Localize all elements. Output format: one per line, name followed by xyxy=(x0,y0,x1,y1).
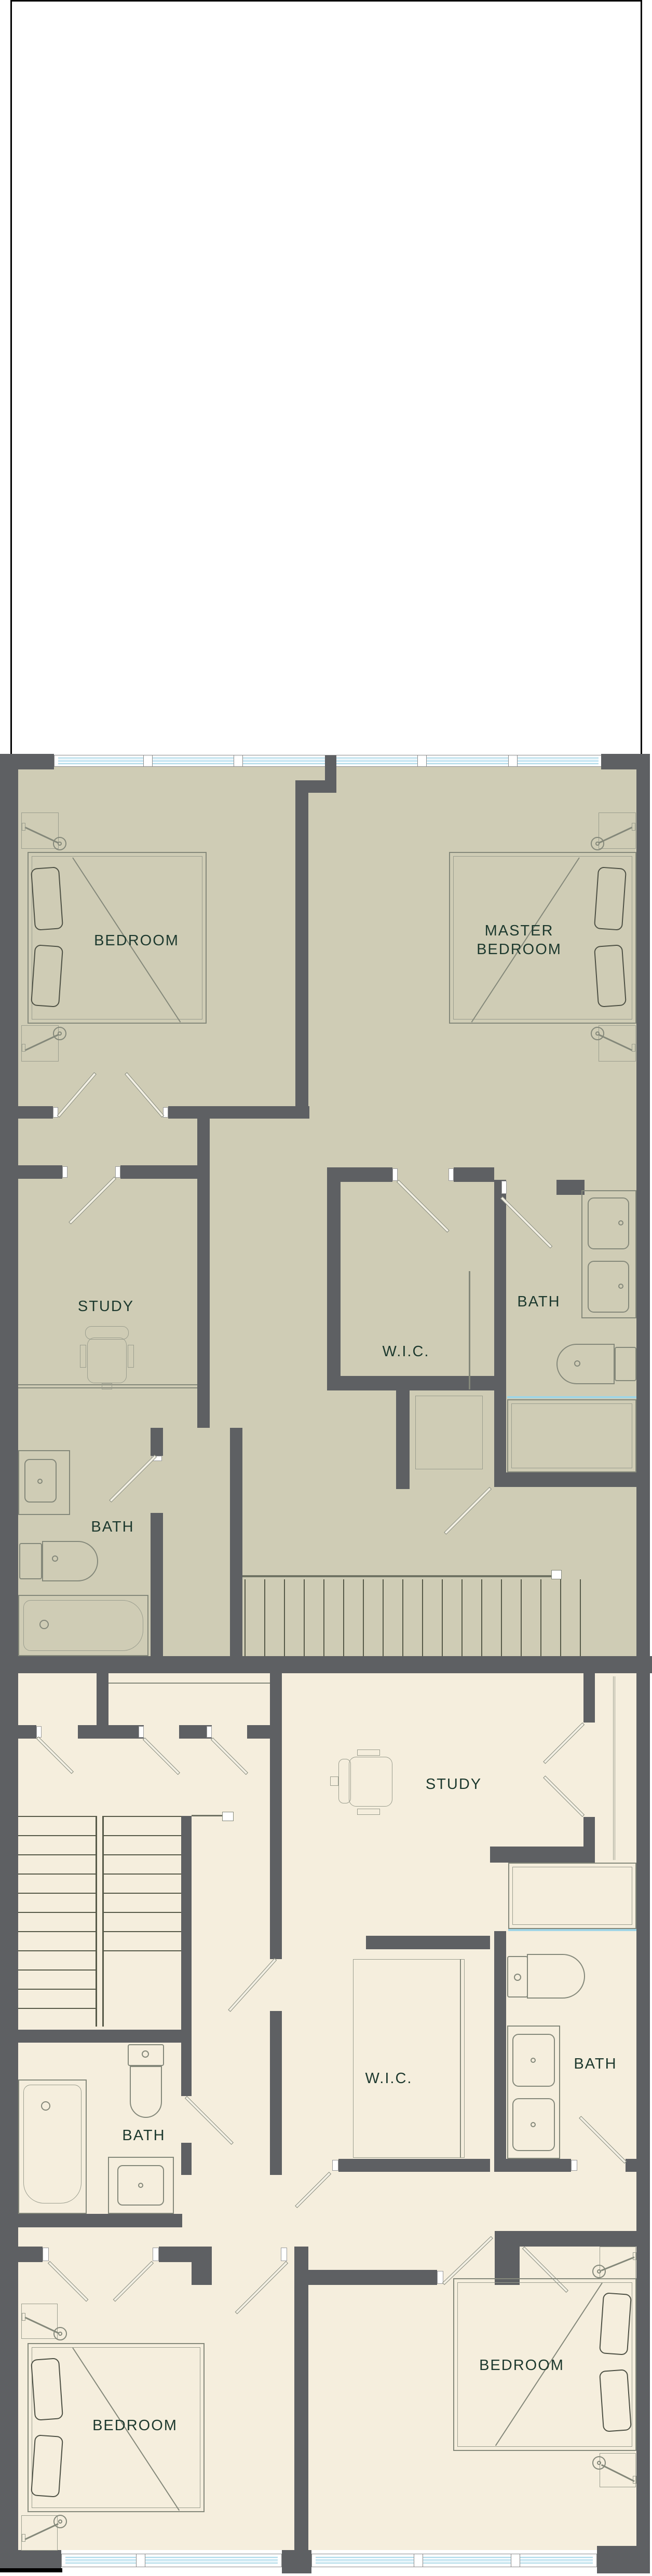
door-jamb xyxy=(62,1166,67,1178)
office-chair-base xyxy=(330,1776,338,1786)
wall xyxy=(18,1725,36,1739)
lamp-base xyxy=(632,1044,635,1052)
wall-lamp-icon xyxy=(58,2332,62,2336)
window-mullion xyxy=(417,755,427,767)
wall xyxy=(494,1180,506,1487)
wall xyxy=(520,2231,636,2247)
pillow xyxy=(31,866,63,931)
wall xyxy=(294,2247,308,2550)
drain-icon xyxy=(39,1620,49,1629)
wall xyxy=(270,1673,282,1959)
stair-treads xyxy=(104,1816,181,1952)
wall-lamp-icon xyxy=(58,2519,62,2524)
office-chair-arm xyxy=(357,1750,380,1756)
stair-stringer xyxy=(96,1816,104,2027)
toilet-flush-icon xyxy=(142,2050,149,2058)
door-jamb xyxy=(36,1726,42,1738)
lamp-base xyxy=(633,2252,636,2260)
window-mullion xyxy=(234,755,243,767)
pillow xyxy=(594,944,627,1008)
door-jamb xyxy=(571,2160,577,2171)
door-jamb xyxy=(281,2248,287,2261)
room-label-bedroom-upper: BEDROOM xyxy=(94,931,179,950)
window-mullion xyxy=(508,755,518,767)
wall xyxy=(0,754,54,769)
sheet-border-bottom xyxy=(0,2568,62,2572)
door-jamb xyxy=(207,1726,212,1738)
closet-shelf xyxy=(415,1396,483,1469)
wall xyxy=(583,1673,595,1723)
wall xyxy=(636,754,650,1673)
wall xyxy=(18,2030,182,2043)
wall xyxy=(270,2011,282,2175)
faucet-icon xyxy=(531,2058,536,2063)
sheet-border-right xyxy=(641,0,642,768)
closet-shelf xyxy=(353,1959,465,2158)
nightstand xyxy=(600,2453,636,2487)
wall xyxy=(192,2247,212,2285)
toilet-flush-icon xyxy=(52,1555,58,1562)
stair-treads xyxy=(18,1816,96,2027)
room-label-master-bedroom: MASTER BEDROOM xyxy=(477,921,562,959)
shower-tray-inner xyxy=(511,1403,632,1468)
wall xyxy=(0,2550,61,2568)
door-jamb xyxy=(153,2248,159,2261)
door-jamb xyxy=(392,1168,398,1181)
pillow xyxy=(31,2358,63,2421)
drain-icon xyxy=(41,2101,50,2111)
wall xyxy=(18,2214,182,2227)
room-label-wic-lower: W.I.C. xyxy=(365,2069,413,2088)
toilet-flush-icon xyxy=(514,1974,521,1981)
room-label-master-line2: BEDROOM xyxy=(477,940,562,959)
pillow xyxy=(31,944,63,1008)
lamp-base xyxy=(632,823,635,831)
door-jamb xyxy=(139,1726,144,1738)
wall xyxy=(494,1931,506,2172)
office-chair-arm xyxy=(128,1345,134,1368)
wall xyxy=(506,1472,636,1487)
wall xyxy=(597,2546,650,2573)
wall xyxy=(494,2159,571,2172)
faucet-icon xyxy=(138,2183,143,2188)
closet-partition-line xyxy=(460,1959,461,2158)
room-label-study-lower: STUDY xyxy=(426,1775,482,1794)
door-jamb xyxy=(449,1168,454,1181)
room-label-study-upper: STUDY xyxy=(78,1297,134,1316)
lamp-base xyxy=(22,2313,25,2321)
office-chair-arm xyxy=(80,1345,86,1368)
stair-rail xyxy=(242,1575,561,1577)
wall xyxy=(295,793,308,1106)
window-glass xyxy=(65,2557,278,2564)
wall xyxy=(327,1182,341,1376)
wall xyxy=(0,1656,652,1673)
room-label-bath-lower-right: BATH xyxy=(574,2055,617,2073)
office-chair-base xyxy=(102,1383,112,1389)
toilet-tank xyxy=(19,1543,42,1579)
room-label-wic-upper: W.I.C. xyxy=(383,1342,430,1361)
window-mullion xyxy=(143,755,153,767)
toilet-tank xyxy=(615,1347,636,1381)
sheet-border-left xyxy=(10,0,12,768)
office-chair-seat xyxy=(87,1338,127,1383)
wall xyxy=(247,1725,282,1739)
toilet-bowl xyxy=(527,1954,585,1999)
door-jamb xyxy=(332,2160,338,2171)
lamp-base xyxy=(633,2476,636,2484)
toilet-bowl xyxy=(130,2066,162,2118)
wall xyxy=(583,1817,595,1863)
wall xyxy=(18,1165,62,1179)
shower-tray-inner xyxy=(512,1867,632,1925)
wall xyxy=(181,1816,192,2096)
window-mullion xyxy=(136,2554,145,2567)
wall xyxy=(636,1673,650,2573)
faucet-icon xyxy=(531,2122,536,2127)
room-label-master-line1: MASTER xyxy=(477,921,562,940)
room-label-bedroom-lower-right: BEDROOM xyxy=(479,2356,564,2375)
wall xyxy=(366,1936,490,1949)
wall xyxy=(0,754,18,1673)
wall xyxy=(18,1106,53,1119)
lamp-base xyxy=(22,1044,25,1052)
wall xyxy=(626,2159,636,2172)
wall xyxy=(295,780,336,793)
wall xyxy=(230,1428,242,1656)
toilet-flush-icon xyxy=(574,1360,580,1367)
wall xyxy=(282,2550,311,2573)
wall xyxy=(120,1165,210,1179)
lamp-base xyxy=(22,823,25,831)
nightstand xyxy=(21,2304,58,2339)
wall xyxy=(0,1673,18,2568)
wall xyxy=(168,1106,309,1119)
stair-rail xyxy=(192,1815,222,1816)
room-label-bath-lower-left: BATH xyxy=(122,2126,165,2145)
wall xyxy=(308,2270,437,2285)
door-jamb xyxy=(115,1166,120,1178)
wall xyxy=(490,1847,585,1863)
closet-partition-line xyxy=(469,1271,470,1389)
floor-plan-sheet: BEDROOM MASTER BEDROOM STUDY W.I.C. BATH xyxy=(0,0,652,2576)
wall xyxy=(327,1167,392,1182)
window-mullion xyxy=(414,2554,423,2567)
pillow xyxy=(594,866,627,931)
room-label-bath-upper-right: BATH xyxy=(517,1292,560,1311)
shower-glass xyxy=(508,1929,636,1931)
toilet-bowl xyxy=(42,1541,98,1581)
pillow xyxy=(599,2292,632,2355)
office-chair-seat xyxy=(349,1757,392,1807)
wall-lamp-icon xyxy=(597,2461,601,2465)
wall xyxy=(495,2231,520,2285)
office-chair-arm xyxy=(357,1809,380,1815)
bathtub-inner xyxy=(23,2085,81,2203)
wall xyxy=(18,2247,43,2262)
wall xyxy=(396,1390,410,1489)
wall xyxy=(78,1725,108,1739)
pillow xyxy=(31,2434,63,2498)
room-label-bath-upper-left: BATH xyxy=(91,1518,134,1536)
shower-glass xyxy=(507,1396,636,1398)
wall xyxy=(151,1428,163,1456)
closet-partition-line xyxy=(613,1676,615,1860)
stair-newel-post xyxy=(551,1570,562,1579)
window-glass xyxy=(316,2557,593,2564)
wall xyxy=(159,2247,192,2262)
wall xyxy=(181,2143,192,2175)
toilet-bowl xyxy=(556,1344,615,1384)
faucet-icon xyxy=(618,1284,623,1289)
stair-newel-post xyxy=(222,1812,234,1821)
room-label-bedroom-lower-left: BEDROOM xyxy=(92,2416,178,2435)
sheet-border-top xyxy=(10,0,642,2)
faucet-icon xyxy=(618,1220,623,1225)
window-mullion xyxy=(511,2554,520,2567)
wall xyxy=(197,1119,210,1428)
lamp-base xyxy=(22,2534,25,2542)
door-jamb xyxy=(163,1107,168,1118)
closet-rod-line xyxy=(108,1683,270,1684)
wall xyxy=(454,1167,494,1182)
door-jamb xyxy=(501,1181,507,1194)
wall xyxy=(556,1180,585,1195)
wall xyxy=(338,2159,490,2172)
door-jamb xyxy=(43,2248,49,2261)
wall xyxy=(151,1513,163,1656)
faucet-icon xyxy=(37,1479,43,1484)
stair-treads xyxy=(244,1579,595,1656)
pillow xyxy=(599,2369,632,2432)
